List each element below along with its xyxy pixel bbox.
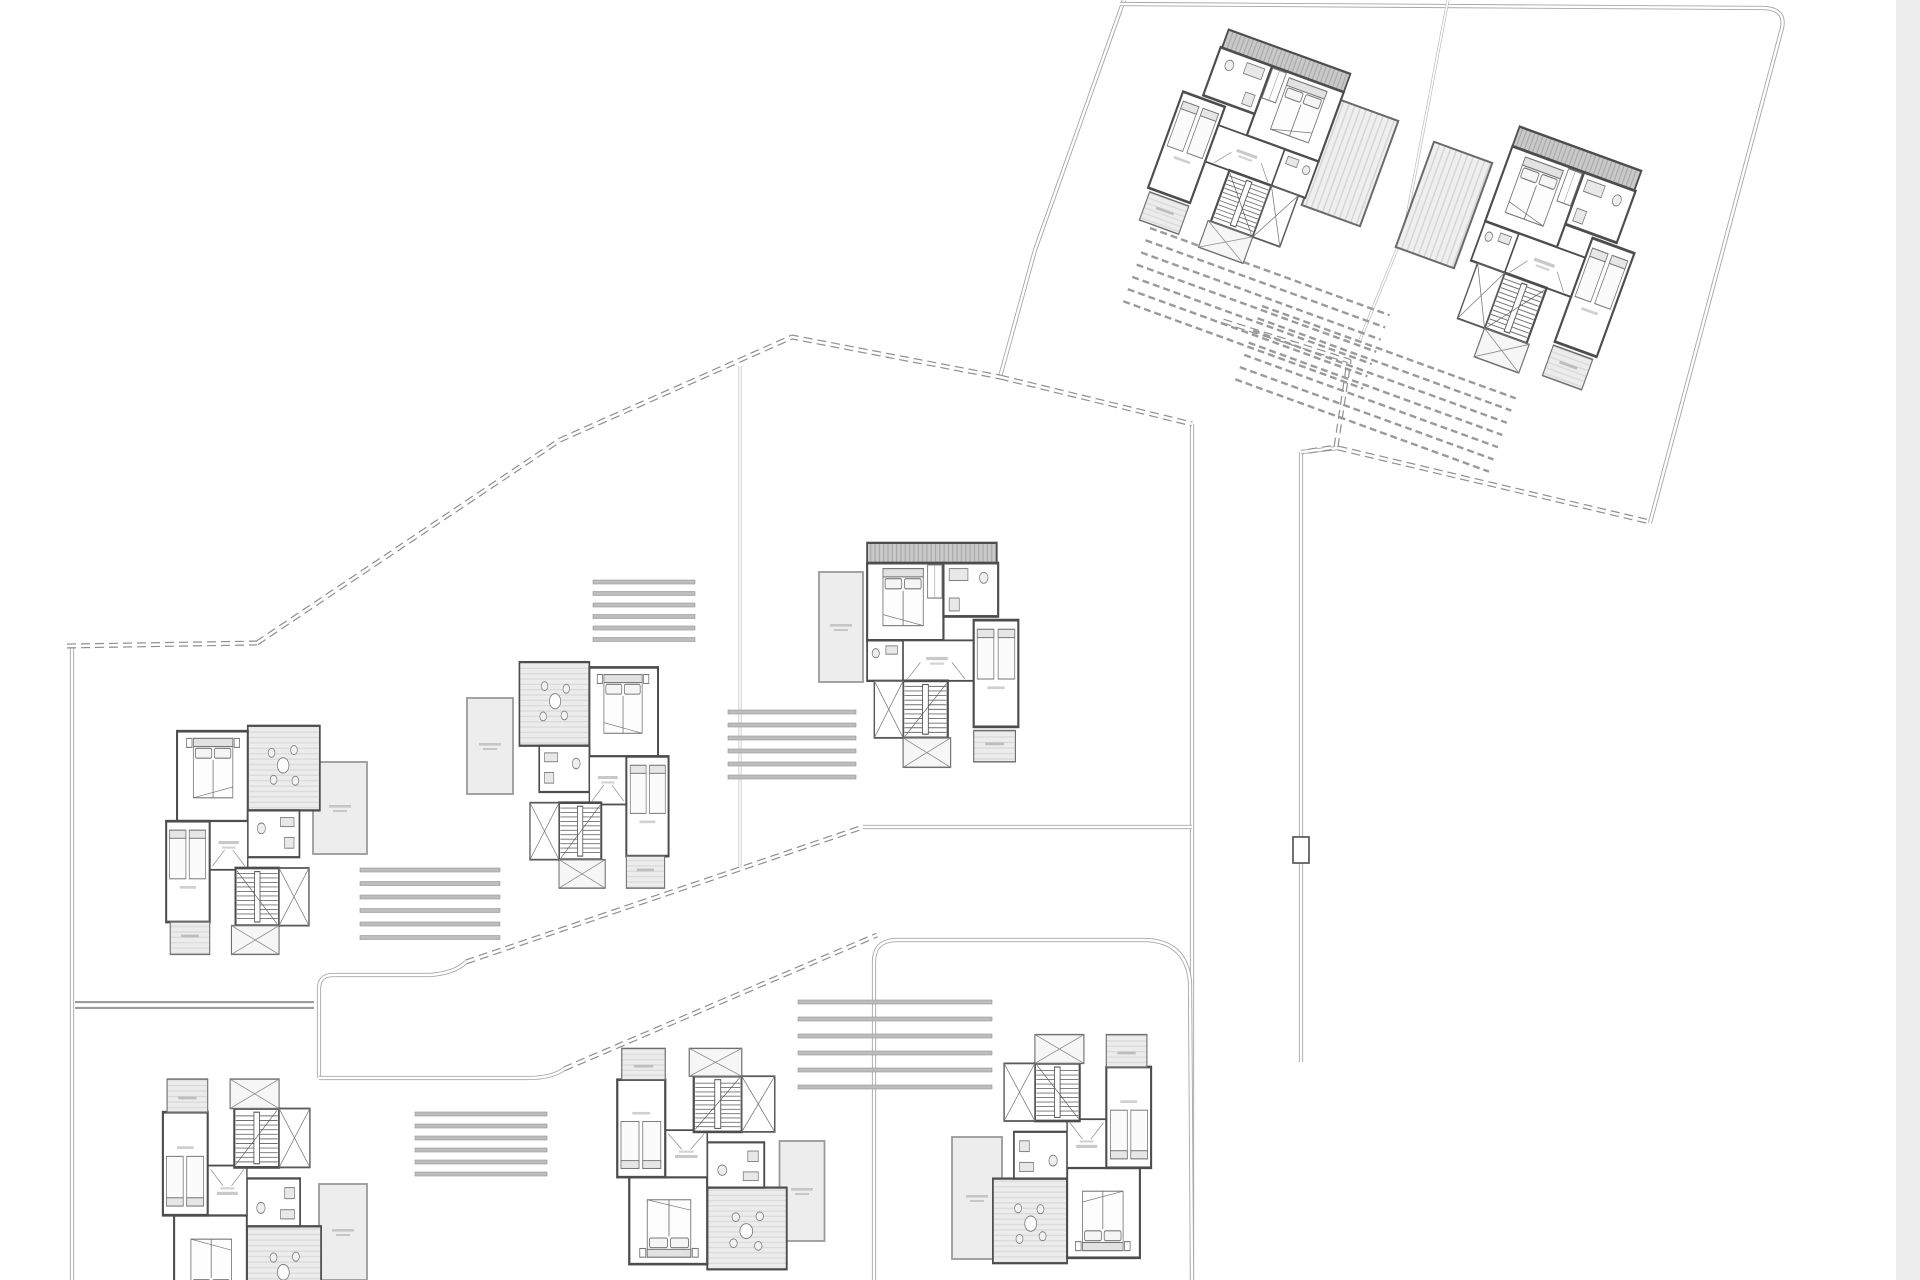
gate-marker (1293, 837, 1309, 863)
house-plan-d (519, 662, 668, 888)
terrace-house-c (819, 572, 863, 682)
terrace-house-e (313, 762, 367, 854)
house-plan-f (163, 1079, 321, 1280)
right-margin-band (1896, 0, 1920, 1280)
house-plan-e (166, 726, 320, 955)
house-plan-c (867, 543, 1018, 767)
site-plan-svg (0, 0, 1920, 1280)
terrace-house-f (319, 1184, 367, 1280)
house-plan-g (617, 1048, 787, 1269)
site-plan-sheet (0, 0, 1920, 1280)
terrace-house-d (467, 698, 513, 794)
house-plan-h (993, 1035, 1151, 1264)
